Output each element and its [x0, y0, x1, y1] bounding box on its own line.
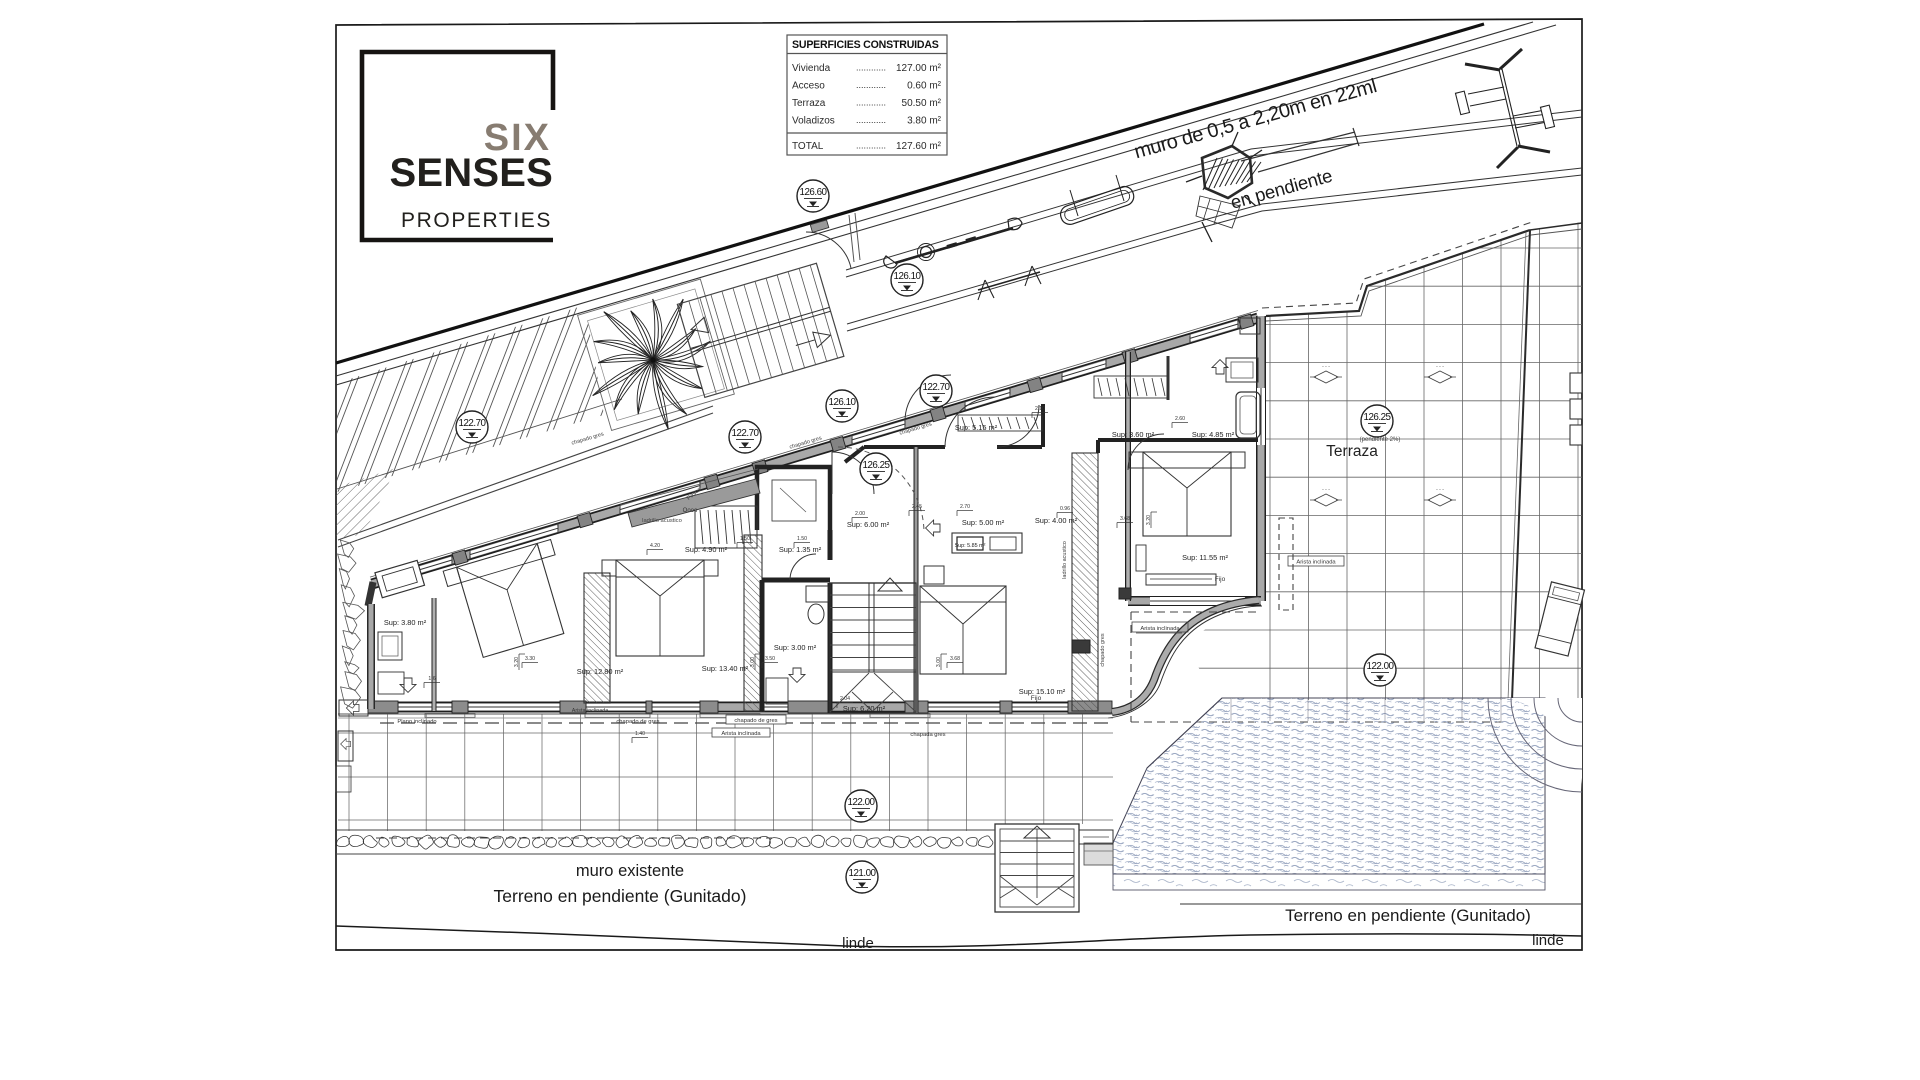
svg-text:0.60 m²: 0.60 m²: [907, 81, 942, 92]
svg-text:............: ............: [856, 141, 886, 151]
svg-text:Sup: 4.00 m²: Sup: 4.00 m²: [1035, 516, 1078, 525]
svg-text:Terreno en pendiente (Gunitado: Terreno en pendiente (Gunitado): [1285, 906, 1531, 925]
svg-text:50.50 m²: 50.50 m²: [902, 98, 942, 109]
svg-text:1.6: 1.6: [428, 676, 435, 682]
svg-text:Arista inclinada: Arista inclinada: [1296, 560, 1336, 566]
svg-text:Voladizos: Voladizos: [792, 116, 835, 127]
svg-text:Arista inclinada: Arista inclinada: [1140, 626, 1180, 632]
svg-text:Sup: 3.80 m²: Sup: 3.80 m²: [384, 618, 427, 627]
svg-text:ladrillo acustico: ladrillo acustico: [642, 518, 682, 524]
svg-text:- - -: - - -: [1436, 487, 1444, 493]
svg-text:2.04: 2.04: [840, 696, 850, 702]
svg-text:Terraza: Terraza: [1326, 443, 1378, 460]
svg-text:Sup: 4.85 m²: Sup: 4.85 m²: [1192, 430, 1235, 439]
svg-text:TOTAL: TOTAL: [792, 141, 824, 152]
svg-text:1.50: 1.50: [797, 536, 807, 542]
svg-text:Arista inclinada: Arista inclinada: [721, 731, 761, 737]
svg-text:126.10: 126.10: [894, 271, 922, 282]
svg-text:127.60 m²: 127.60 m²: [896, 141, 942, 152]
svg-text:126.10: 126.10: [829, 397, 857, 408]
svg-text:- - -: - - -: [1322, 364, 1330, 370]
svg-text:(pendiente 2%): (pendiente 2%): [1360, 437, 1401, 443]
svg-text:Arista inclinada: Arista inclinada: [572, 708, 609, 714]
svg-text:Sup: 5.85 m²: Sup: 5.85 m²: [955, 543, 986, 549]
svg-text:3.00: 3.00: [750, 657, 756, 667]
svg-text:0.96: 0.96: [1060, 506, 1070, 512]
svg-text:122.70: 122.70: [732, 428, 760, 439]
svg-text:3.80 m²: 3.80 m²: [907, 116, 942, 127]
svg-text:3.20: 3.20: [514, 657, 520, 667]
svg-text:Fijo: Fijo: [1031, 695, 1042, 702]
svg-text:Vivienda: Vivienda: [792, 63, 831, 74]
svg-text:- - -: - - -: [1322, 487, 1330, 493]
svg-text:chapado gres: chapado gres: [1100, 633, 1106, 667]
svg-text:2.10: 2.10: [1035, 406, 1045, 412]
svg-text:3.30: 3.30: [525, 656, 535, 662]
svg-text:Sup: 3.60 m²: Sup: 3.60 m²: [1112, 430, 1155, 439]
svg-text:3.68: 3.68: [950, 656, 960, 662]
svg-text:1.50: 1.50: [740, 536, 750, 542]
svg-text:Terraza: Terraza: [792, 98, 826, 109]
svg-text:3.00: 3.00: [936, 657, 942, 667]
svg-text:Sup: 11.55 m²: Sup: 11.55 m²: [1182, 553, 1228, 562]
svg-text:Sup: 6.00 m²: Sup: 6.00 m²: [847, 520, 890, 529]
svg-text:3.50: 3.50: [765, 656, 775, 662]
svg-text:- - -: - - -: [1436, 364, 1444, 370]
svg-text:2.60: 2.60: [1175, 416, 1185, 422]
svg-text:3.68: 3.68: [1120, 516, 1130, 522]
svg-text:............: ............: [856, 115, 886, 125]
svg-text:126.60: 126.60: [800, 187, 828, 198]
svg-text:chapado de gres: chapado de gres: [734, 718, 777, 724]
svg-text:............: ............: [856, 98, 886, 108]
svg-text:SUPERFICIES CONSTRUIDAS: SUPERFICIES CONSTRUIDAS: [792, 39, 939, 51]
svg-text:Sup: 12.80 m²: Sup: 12.80 m²: [577, 667, 624, 676]
svg-text:2.00: 2.00: [855, 511, 865, 517]
svg-text:Sup: 3.00 m²: Sup: 3.00 m²: [774, 643, 817, 652]
svg-text:Sup: 4.90 m²: Sup: 4.90 m²: [685, 545, 728, 554]
svg-text:1.40: 1.40: [635, 731, 645, 737]
svg-text:126.25: 126.25: [1364, 412, 1392, 423]
svg-text:linde: linde: [842, 935, 874, 952]
svg-text:3.20: 3.20: [1146, 515, 1152, 525]
svg-text:............: ............: [856, 63, 886, 73]
svg-text:Sup: 15.10 m²: Sup: 15.10 m²: [1019, 687, 1066, 696]
svg-text:chapada gres: chapada gres: [910, 732, 945, 738]
svg-text:Sup: 13.40 m²: Sup: 13.40 m²: [702, 664, 749, 673]
svg-text:Sup: 1.35 m²: Sup: 1.35 m²: [779, 545, 822, 554]
svg-text:PROPERTIES: PROPERTIES: [401, 209, 552, 232]
svg-text:Sup: 5.15 m²: Sup: 5.15 m²: [955, 423, 998, 432]
svg-text:Oooo: Oooo: [683, 508, 698, 514]
svg-text:122.00: 122.00: [848, 797, 876, 808]
svg-text:chapado de gres: chapado de gres: [616, 719, 659, 725]
svg-text:122.70: 122.70: [459, 418, 487, 429]
svg-text:Sup: 6.20 m²: Sup: 6.20 m²: [843, 704, 886, 713]
svg-text:Terreno en pendiente (Gunitado: Terreno en pendiente (Gunitado): [494, 886, 747, 906]
svg-text:............: ............: [856, 80, 886, 90]
svg-text:ladrillo acustico: ladrillo acustico: [1062, 541, 1068, 579]
svg-text:122.70: 122.70: [923, 382, 951, 393]
svg-text:SENSES: SENSES: [390, 151, 554, 195]
svg-text:2.45: 2.45: [912, 504, 922, 510]
svg-text:Acceso: Acceso: [792, 81, 825, 92]
svg-text:127.00 m²: 127.00 m²: [896, 63, 942, 74]
svg-text:126.25: 126.25: [863, 460, 891, 471]
svg-text:linde: linde: [1532, 932, 1564, 949]
svg-text:2.70: 2.70: [960, 504, 970, 510]
svg-text:4.20: 4.20: [650, 543, 660, 549]
svg-text:121.00: 121.00: [849, 868, 877, 879]
svg-text:Sup: 5.00 m²: Sup: 5.00 m²: [962, 518, 1005, 527]
svg-text:muro existente: muro existente: [576, 862, 684, 880]
svg-text:122.00: 122.00: [1367, 661, 1395, 672]
svg-text:Plano inclinado: Plano inclinado: [397, 719, 436, 725]
